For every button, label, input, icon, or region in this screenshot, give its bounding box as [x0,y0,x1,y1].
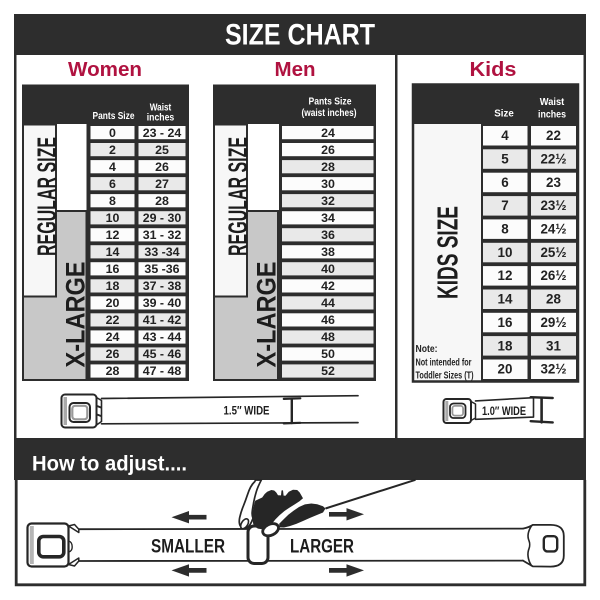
svg-text:20: 20 [498,362,513,377]
svg-text:SMALLER: SMALLER [151,536,225,557]
svg-text:inches: inches [147,112,175,123]
svg-text:KIDS SIZE: KIDS SIZE [433,206,465,299]
svg-text:10: 10 [498,245,513,260]
svg-text:16: 16 [498,315,513,330]
svg-text:47 - 48: 47 - 48 [143,364,182,378]
svg-text:X-LARGE: X-LARGE [61,262,91,368]
svg-text:12: 12 [498,268,513,283]
svg-text:25: 25 [155,143,169,157]
svg-text:28: 28 [106,364,120,378]
svg-text:22: 22 [546,128,561,143]
svg-text:24½: 24½ [540,222,566,237]
svg-text:4: 4 [109,160,116,174]
svg-text:28: 28 [321,160,335,174]
svg-text:0: 0 [109,126,116,140]
svg-text:25½: 25½ [540,245,566,260]
svg-text:How to adjust....: How to adjust.... [32,453,187,476]
svg-text:7: 7 [501,198,508,213]
svg-text:26: 26 [106,347,120,361]
svg-text:29½: 29½ [540,315,566,330]
svg-text:14: 14 [106,245,120,259]
svg-text:Note:: Note: [416,344,438,355]
svg-text:23: 23 [546,175,561,190]
svg-text:40: 40 [321,262,335,276]
svg-text:20: 20 [106,296,120,310]
svg-text:inches: inches [538,109,566,121]
svg-text:10: 10 [106,211,120,225]
svg-text:43 - 44: 43 - 44 [143,330,182,344]
svg-text:5: 5 [501,152,509,167]
svg-text:Women: Women [68,58,142,81]
svg-text:26: 26 [321,143,335,157]
svg-text:23½: 23½ [540,198,566,213]
svg-text:18: 18 [498,338,513,353]
svg-text:26½: 26½ [540,268,566,283]
svg-text:46: 46 [321,313,335,327]
svg-text:Kids: Kids [470,58,517,81]
svg-text:8: 8 [501,222,509,237]
svg-text:38: 38 [321,245,335,259]
svg-text:Men: Men [275,58,316,81]
svg-text:31: 31 [546,338,561,353]
svg-text:23 - 24: 23 - 24 [143,126,182,140]
svg-text:36: 36 [321,228,335,242]
svg-text:Size: Size [494,108,514,120]
svg-text:27: 27 [155,177,169,191]
svg-text:29 - 30: 29 - 30 [143,211,182,225]
svg-text:REGULAR SIZE: REGULAR SIZE [223,137,253,256]
svg-text:26: 26 [155,160,169,174]
svg-text:8: 8 [109,194,116,208]
svg-text:Pants Size: Pants Size [309,97,352,108]
svg-text:22½: 22½ [540,152,566,167]
svg-text:28: 28 [546,292,561,307]
svg-text:REGULAR SIZE: REGULAR SIZE [32,137,62,256]
svg-text:12: 12 [106,228,120,242]
svg-text:Pants Size: Pants Size [93,111,135,122]
svg-text:41 - 42: 41 - 42 [143,313,182,327]
svg-text:31 - 32: 31 - 32 [143,228,182,242]
svg-text:18: 18 [106,279,120,293]
svg-text:Not intended for: Not intended for [416,358,472,369]
svg-text:SIZE CHART: SIZE CHART [225,19,375,52]
svg-text:50: 50 [321,347,335,361]
svg-text:45 - 46: 45 - 46 [143,347,182,361]
svg-text:14: 14 [498,292,513,307]
svg-text:6: 6 [501,175,508,190]
svg-text:Waist: Waist [540,96,565,108]
svg-text:24: 24 [321,126,335,140]
svg-text:6: 6 [109,177,116,191]
svg-text:33 -34: 33 -34 [144,245,179,259]
svg-text:32½: 32½ [540,362,566,377]
svg-text:30: 30 [321,177,335,191]
svg-text:2: 2 [109,143,116,157]
svg-text:Toddler Sizes (T): Toddler Sizes (T) [416,371,474,382]
svg-text:32: 32 [321,194,335,208]
svg-text:42: 42 [321,279,335,293]
svg-text:37 - 38: 37 - 38 [143,279,182,293]
svg-text:34: 34 [321,211,335,225]
svg-text:1.0″ WIDE: 1.0″ WIDE [482,406,526,418]
svg-text:39 - 40: 39 - 40 [143,296,182,310]
svg-text:44: 44 [321,296,335,310]
svg-text:(waist inches): (waist inches) [302,108,357,119]
svg-text:X-LARGE: X-LARGE [252,262,282,368]
svg-text:LARGER: LARGER [290,537,354,558]
svg-text:24: 24 [106,330,120,344]
svg-text:4: 4 [501,128,509,143]
svg-text:16: 16 [106,262,120,276]
svg-text:28: 28 [155,194,169,208]
svg-text:22: 22 [106,313,120,327]
svg-text:1.5″ WIDE: 1.5″ WIDE [224,406,270,418]
svg-text:52: 52 [321,364,335,378]
svg-text:48: 48 [321,330,335,344]
svg-text:35 -36: 35 -36 [144,262,179,276]
